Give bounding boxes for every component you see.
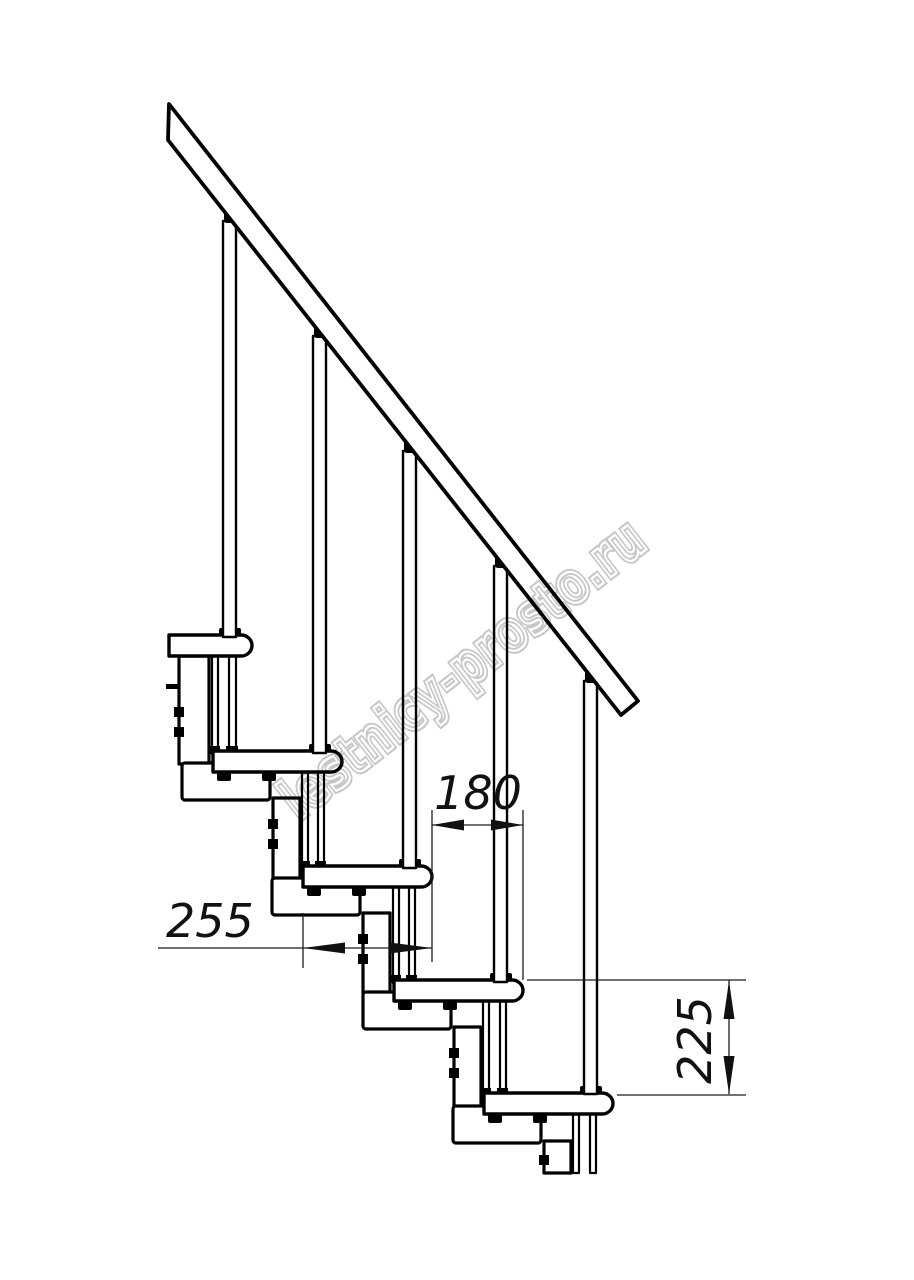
dimension-label-180: 180 xyxy=(434,766,522,820)
arrowhead-left xyxy=(432,820,464,831)
rod xyxy=(590,1111,596,1173)
clamp-tab xyxy=(217,771,231,781)
stringer-column xyxy=(454,1027,481,1108)
rod xyxy=(229,653,236,754)
bolt xyxy=(539,1155,549,1165)
staircase-drawing: 180 255 225 lestnicy-prosto.ru lestnicy-… xyxy=(0,0,914,1280)
clamp-tab xyxy=(352,886,366,896)
bolt xyxy=(268,839,278,849)
bolt xyxy=(449,1068,459,1078)
tread-5 xyxy=(484,1093,613,1114)
rod xyxy=(393,884,399,983)
dimension-label-255: 255 xyxy=(166,894,254,948)
rod xyxy=(409,884,415,983)
bolt xyxy=(174,727,184,737)
baluster-5 xyxy=(584,681,597,1094)
stringer-column xyxy=(363,913,390,994)
rod xyxy=(573,1111,579,1173)
bolt xyxy=(174,707,184,717)
rod xyxy=(212,653,218,754)
rod xyxy=(500,998,506,1094)
dimension-label-225: 225 xyxy=(668,996,722,1084)
column-tab xyxy=(166,684,180,689)
bolt xyxy=(268,819,278,829)
clamp-tab xyxy=(398,1000,412,1010)
clamp-tab xyxy=(488,1113,502,1123)
baluster-1 xyxy=(223,221,236,637)
clamp-tab xyxy=(307,886,321,896)
arrowhead-up xyxy=(724,981,735,1019)
clamp-tab xyxy=(443,1000,457,1010)
drawing-sheet: 180 255 225 lestnicy-prosto.ru lestnicy-… xyxy=(0,0,914,1280)
rod xyxy=(483,998,489,1094)
dimension-annotations: 180 255 225 xyxy=(158,766,746,1095)
baluster-2 xyxy=(313,336,326,753)
baluster-3 xyxy=(403,451,416,868)
bolt xyxy=(358,954,368,964)
clamp-tab xyxy=(533,1113,547,1123)
bolt xyxy=(449,1048,459,1058)
arrowhead-down xyxy=(724,1056,735,1094)
tread-1 xyxy=(169,635,252,656)
arrowhead-left xyxy=(303,943,345,954)
bolt xyxy=(358,934,368,944)
